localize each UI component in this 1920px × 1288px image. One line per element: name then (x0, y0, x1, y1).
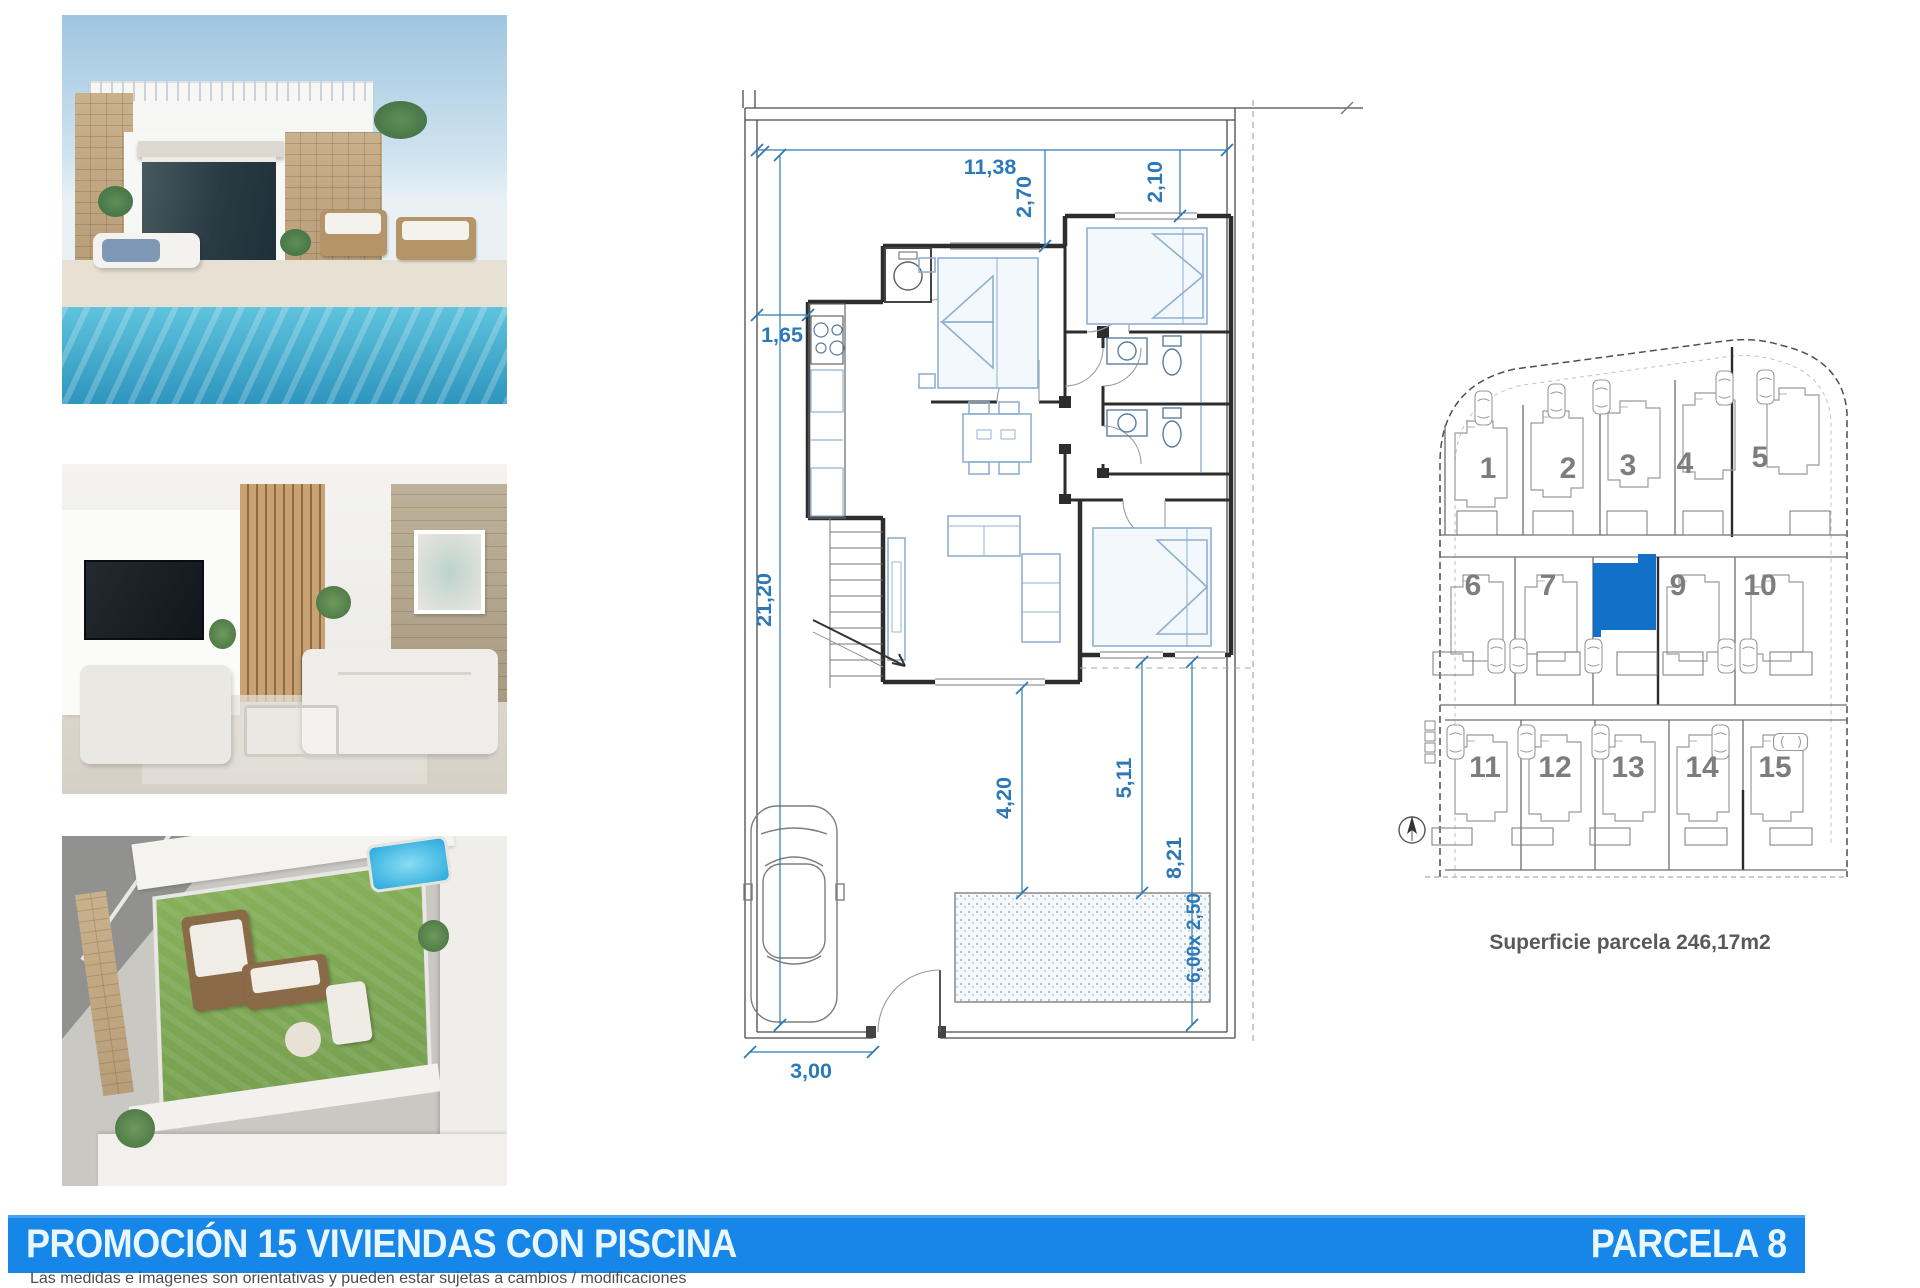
disclaimer-text: Las medidas e imagenes son orientativas … (30, 1270, 930, 1288)
photo-living-room-interior (62, 464, 507, 794)
parcel-number-11[interactable]: 11 (1469, 751, 1501, 784)
north-compass-icon (1399, 816, 1425, 843)
swimming-pool (62, 307, 507, 404)
bathroom-2 (1107, 406, 1201, 472)
plant (316, 586, 352, 619)
sun-lounger (93, 233, 200, 268)
roof-parapet-bottom (98, 1134, 507, 1187)
parcel-number-12[interactable]: 12 (1538, 751, 1571, 784)
rattan-sofa (396, 217, 476, 260)
parcel-8-highlight[interactable] (1593, 554, 1656, 637)
brochure-page: { "document": { "banner": { "title": "PR… (0, 0, 1920, 1280)
parcel-number-4[interactable]: 4 (1677, 447, 1694, 480)
dining-set (963, 402, 1031, 474)
kitchen (809, 304, 845, 518)
dim-setback-right: 2,10 (1143, 161, 1167, 203)
plant (209, 619, 236, 649)
dim-gate-width: 3,00 (790, 1059, 832, 1083)
dim-pool-rear: 8,21 (1162, 837, 1186, 879)
photo-villa-pool-exterior (62, 15, 507, 404)
palm-tree (374, 101, 427, 140)
bed-3 (1093, 528, 1211, 646)
dim-setback-left: 2,70 (1012, 176, 1036, 218)
parcel-number-6[interactable]: 6 (1465, 569, 1482, 602)
parcel-number-15[interactable]: 15 (1758, 751, 1791, 784)
dim-house-to-pool: 4,20 (992, 777, 1016, 819)
bathroom-1 (1107, 334, 1201, 402)
rooftop-jacuzzi (365, 836, 453, 893)
promotion-title: PROMOCIÓN 15 VIVIENDAS CON PISCINA (26, 1222, 737, 1267)
coffee-table (244, 705, 339, 757)
parcel-number-1[interactable]: 1 (1480, 452, 1497, 485)
parcel-area-caption: Superficie parcela 246,17m2 (1470, 931, 1790, 955)
parcel-number-9[interactable]: 9 (1670, 569, 1687, 602)
pool-plan (955, 893, 1210, 1002)
site-plan: 1 2 3 4 5 6 7 9 10 11 12 13 14 15 (1395, 285, 1855, 880)
staircase (813, 518, 905, 688)
bed-2 (1087, 228, 1207, 324)
parcel-label: PARCELA 8 (1591, 1222, 1787, 1267)
lounge-chair (325, 981, 373, 1045)
parcel-number-5[interactable]: 5 (1752, 441, 1769, 474)
utility-boxes (1425, 721, 1435, 763)
parcel-number-13[interactable]: 13 (1611, 751, 1644, 784)
parcel-number-7[interactable]: 7 (1540, 569, 1557, 602)
dim-pool-size: 6,00x 2,50 (1184, 893, 1205, 983)
rattan-sofa (320, 210, 387, 257)
dim-plot-depth: 21,20 (752, 573, 776, 627)
sofa-left (80, 665, 231, 764)
parcel-number-2[interactable]: 2 (1560, 452, 1577, 485)
television (84, 560, 204, 640)
photo-rooftop-terrace-aerial (62, 836, 507, 1186)
villa-awning (138, 141, 285, 157)
laundry-closet (885, 248, 931, 302)
parcel-number-14[interactable]: 14 (1685, 751, 1719, 784)
plant (115, 1109, 155, 1148)
car-icon (744, 806, 844, 1022)
dim-plot-width: 11,38 (964, 155, 1017, 179)
living-room-furniture (888, 516, 1060, 660)
parcel-number-3[interactable]: 3 (1620, 449, 1637, 482)
sofa-cushion-line (338, 672, 472, 675)
title-banner: PROMOCIÓN 15 VIVIENDAS CON PISCINA PARCE… (8, 1215, 1805, 1273)
floor-plan: 11,38 2,70 2,10 1,65 21,20 4,20 5,11 8,2… (735, 70, 1375, 1090)
parcel-number-10[interactable]: 10 (1743, 569, 1776, 602)
entrance-gate (866, 970, 946, 1038)
driveways (1432, 511, 1830, 845)
wall-picture (414, 530, 484, 614)
dim-kitchen-offset: 1,65 (761, 323, 803, 347)
bed-1 (919, 258, 1038, 388)
dim-pool-side: 5,11 (1112, 758, 1136, 799)
plant (418, 920, 449, 952)
